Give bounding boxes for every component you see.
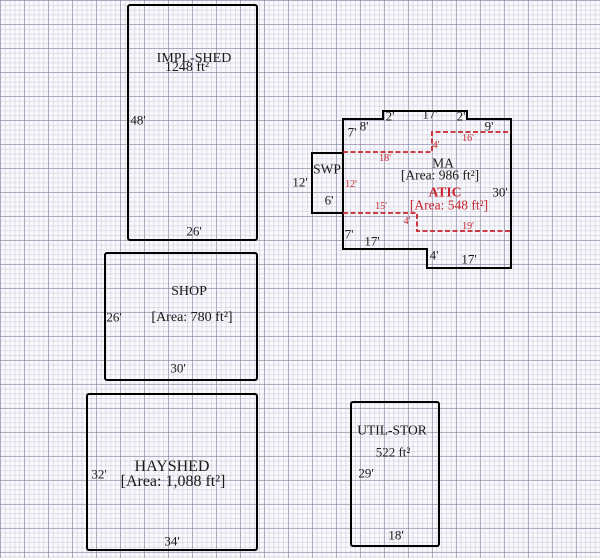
ma-top-right-width-dim: 9' bbox=[485, 120, 494, 133]
impl-shed-outline bbox=[128, 5, 257, 240]
atic-top-left-dim: 18' bbox=[379, 154, 391, 164]
atic-area: [Area: 548 ft²] bbox=[410, 198, 488, 212]
util-stor-width-dim: 18' bbox=[388, 529, 403, 542]
hayshed-area: [Area: 1,088 ft²] bbox=[121, 474, 226, 490]
util-stor-label: UTIL-STOR bbox=[357, 423, 427, 437]
ma-top-left-height-dim: 7' bbox=[348, 126, 357, 139]
ma-top-step-right-dim: 2' bbox=[457, 110, 466, 123]
swp-width-dim: 6' bbox=[325, 194, 334, 207]
atic-top-step-dim: 4' bbox=[433, 141, 440, 151]
impl-shed-height-dim: 48' bbox=[130, 114, 145, 127]
ma-bottom-left-width-dim: 17' bbox=[364, 235, 379, 248]
impl-shed-area: 1248 ft² bbox=[165, 61, 209, 75]
swp-height-dim: 12' bbox=[292, 176, 307, 189]
ma-right-height-dim: 30' bbox=[492, 186, 507, 199]
ma-top-step-left-dim: 2' bbox=[386, 110, 395, 123]
util-stor-area: 522 ft² bbox=[376, 446, 411, 459]
shop-width-dim: 30' bbox=[170, 362, 185, 375]
impl-shed-width-dim: 26' bbox=[186, 225, 201, 238]
atic-left-height-dim: 12' bbox=[345, 180, 357, 190]
ma-bottom-step-dim: 4' bbox=[430, 249, 439, 262]
sketch-canvas: IMPL-SHED 1248 ft² 48' 26' SHOP [Area: 7… bbox=[0, 0, 600, 558]
shop-label: SHOP bbox=[171, 285, 207, 299]
shop-height-dim: 26' bbox=[106, 311, 121, 324]
atic-bottom-left-dim: 15' bbox=[375, 202, 387, 212]
hayshed-height-dim: 32' bbox=[91, 468, 106, 481]
shop-area: [Area: 780 ft²] bbox=[151, 311, 232, 325]
ma-bottom-right-width-dim: 17' bbox=[461, 253, 476, 266]
atic-top-right-dim: 16' bbox=[462, 134, 474, 144]
atic-bottom-right-dim: 19' bbox=[462, 222, 474, 232]
util-stor-height-dim: 29' bbox=[358, 467, 373, 480]
ma-area: [Area: 986 ft²] bbox=[401, 168, 479, 182]
swp-label: SWP bbox=[313, 162, 341, 176]
atic-lower-dashed-line bbox=[343, 213, 511, 231]
ma-top-left-width-dim: 8' bbox=[360, 120, 369, 133]
atic-bottom-step-dim: 4' bbox=[404, 217, 411, 227]
atic-upper-dashed-line bbox=[343, 132, 511, 152]
sketch-lines-svg bbox=[0, 0, 600, 558]
ma-top-width-dim: 17' bbox=[422, 108, 437, 121]
ma-bottom-left-height-dim: 7' bbox=[345, 228, 354, 241]
hayshed-width-dim: 34' bbox=[164, 535, 179, 548]
